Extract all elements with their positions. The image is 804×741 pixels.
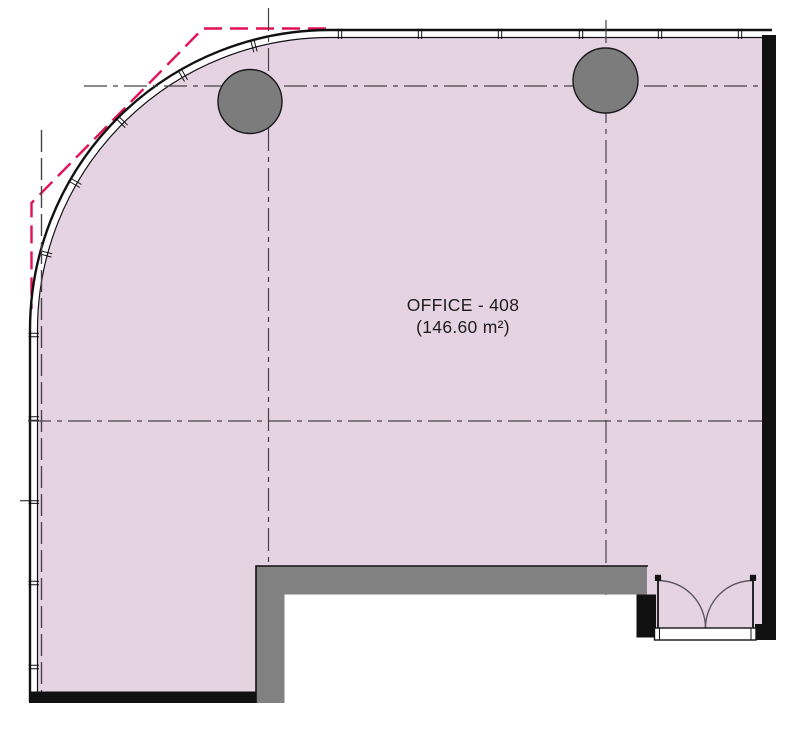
floor-plan-view: OFFICE - 408 (146.60 m²)	[0, 0, 804, 741]
column-icon[interactable]	[573, 48, 638, 113]
room-name-label: OFFICE - 408	[407, 295, 520, 315]
column-icon[interactable]	[218, 70, 282, 134]
right-wall	[762, 35, 776, 628]
door-leaf-end-cap	[750, 575, 756, 581]
bottom-wall	[29, 692, 257, 704]
room-area-label: (146.60 m²)	[416, 317, 510, 337]
door-threshold	[655, 628, 757, 640]
door-jamb-wall-right	[755, 624, 776, 640]
door-leaf-end-cap	[655, 575, 661, 581]
door-jamb-wall-left	[637, 595, 657, 638]
